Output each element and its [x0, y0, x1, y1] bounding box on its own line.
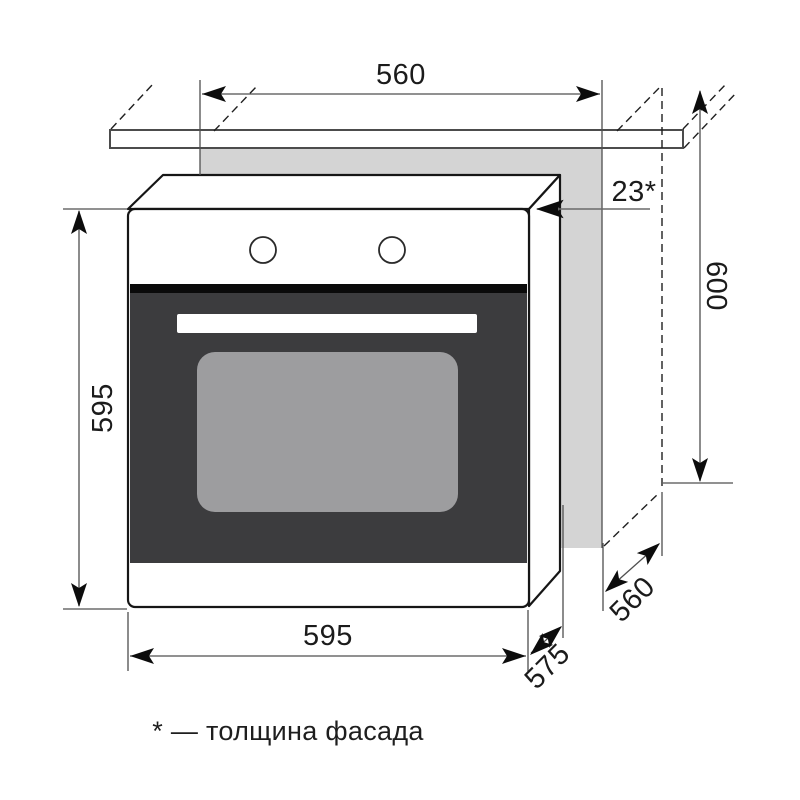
dim-facade-thickness-label: 23* [611, 176, 656, 208]
arrowhead-up-right-icon [637, 537, 666, 565]
installation-diagram-page: 560 595 600 23* 595 560 [0, 0, 800, 800]
oven-installation-diagram: 560 595 600 23* 595 560 [0, 0, 800, 800]
continuation-dash [604, 493, 659, 546]
dim-appliance-width-label: 595 [303, 620, 353, 652]
oven-door-window [197, 352, 458, 512]
dim-niche-width-label: 560 [376, 59, 426, 91]
dim-appliance-height: 595 [63, 209, 127, 609]
countertop [110, 130, 683, 148]
oven-panel-door-gap [130, 284, 527, 293]
oven-knob-right [379, 237, 405, 263]
oven-knob-left [250, 237, 276, 263]
dim-niche-depth: 560 [600, 492, 666, 629]
continuation-dash [617, 87, 660, 131]
oven-side-face [529, 175, 560, 606]
continuation-dash [111, 84, 153, 129]
oven [128, 175, 560, 607]
footnote: * — толщина фасада [152, 716, 424, 746]
dim-appliance-width: 595 [128, 610, 528, 672]
dim-appliance-height-label: 595 [87, 383, 119, 433]
dim-niche-height-label: 600 [700, 261, 732, 311]
oven-door-handle [177, 314, 477, 333]
oven-top-face [128, 175, 560, 209]
